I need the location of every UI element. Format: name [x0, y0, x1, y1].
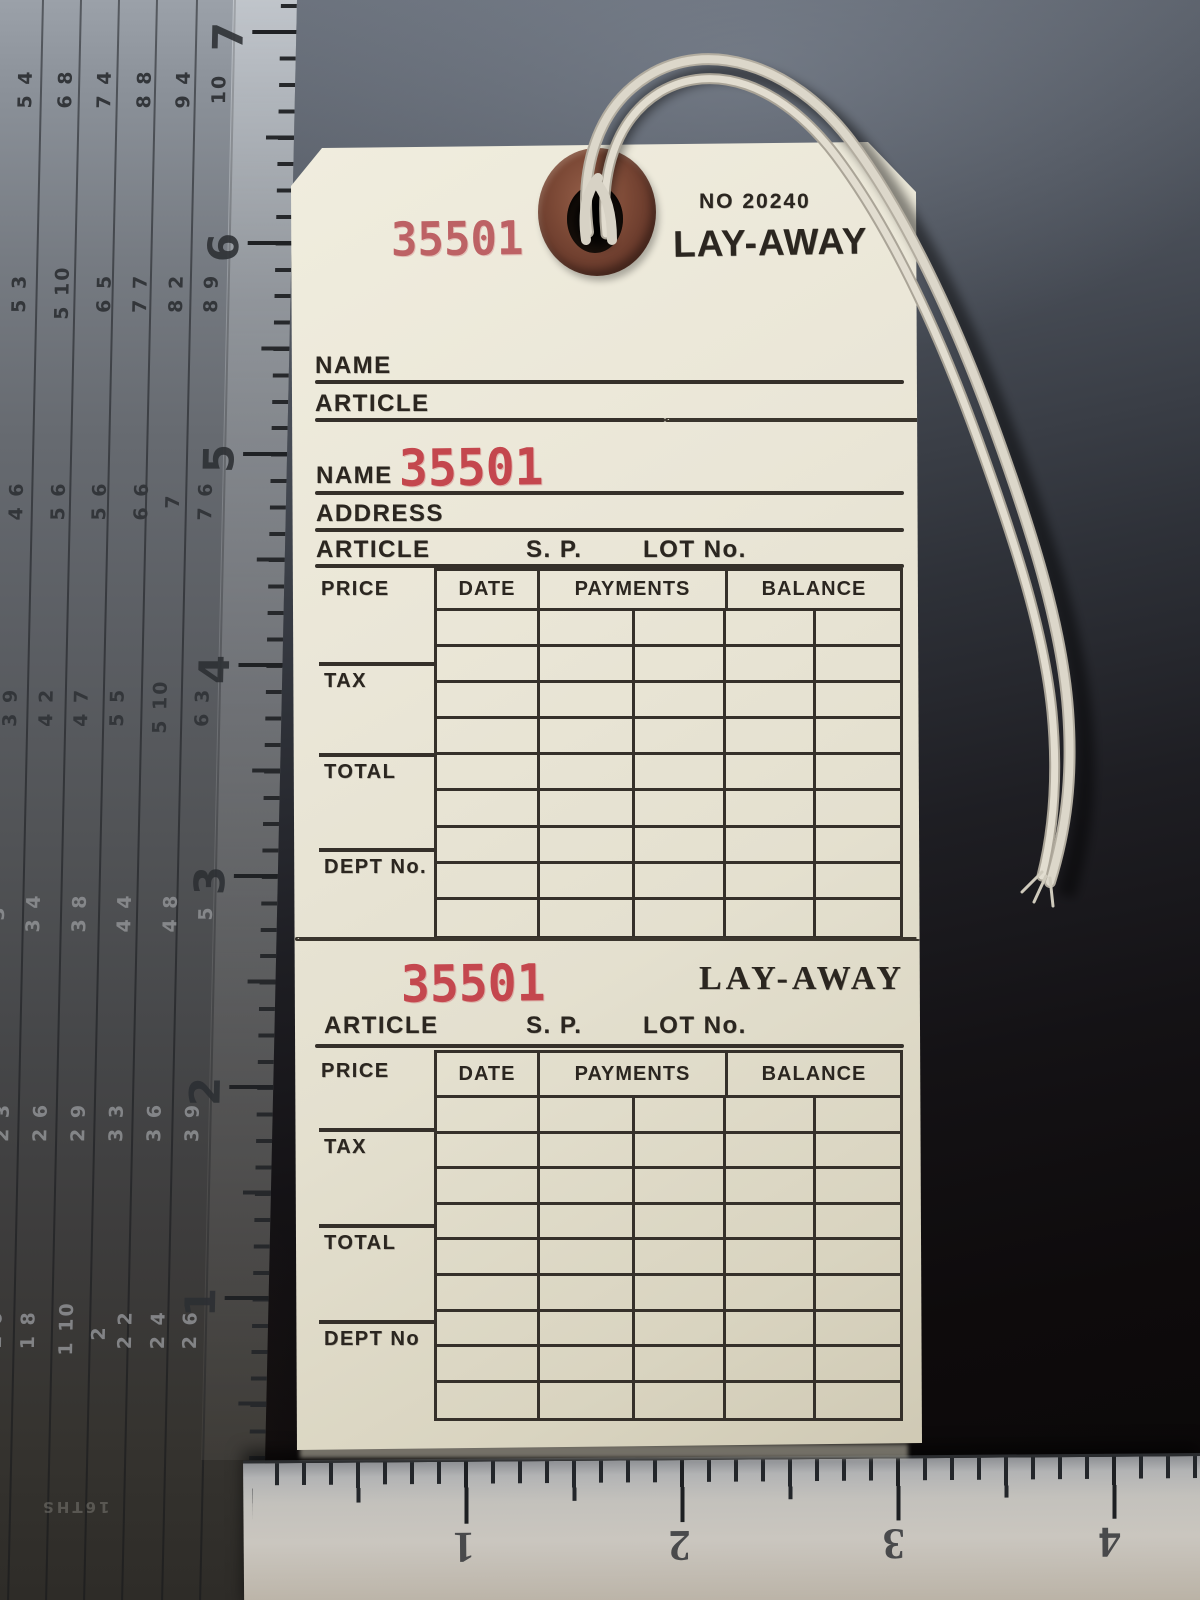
- inch-number: 4: [189, 648, 239, 692]
- rafter-number: 3 4: [23, 893, 46, 932]
- lot-label: LOT No.: [643, 1012, 747, 1040]
- article-writing-line: [315, 418, 665, 422]
- rafter-number: 5 10: [149, 684, 172, 734]
- scale-name-label: 16THS: [40, 1498, 109, 1516]
- table-cell: [635, 1134, 726, 1170]
- rafter-number: 1 8: [16, 1317, 39, 1350]
- table-cell: [726, 1240, 816, 1276]
- payments-table: DATE PAYMENTS BALANCE: [434, 1050, 903, 1421]
- rafter-number-group: 5 35 106 57 78 28 9: [1, 284, 229, 306]
- rafter-number: 4 2: [35, 691, 58, 727]
- tax-label: TAX: [324, 670, 367, 693]
- sp-label: S. P.: [526, 536, 582, 564]
- table-cell: [816, 1347, 900, 1383]
- table-cell: [540, 719, 635, 755]
- table-cell: [437, 900, 540, 936]
- table-cell: [726, 900, 816, 936]
- table-cell: [437, 1312, 540, 1348]
- table-cell: [635, 1169, 726, 1205]
- dept-line: [319, 1320, 435, 1324]
- balance-header: BALANCE: [728, 571, 900, 608]
- table-cell: [635, 1383, 726, 1419]
- rafter-number: 4 6: [5, 481, 28, 520]
- scale-line: [7, 0, 44, 1600]
- table-cell: [540, 1098, 635, 1134]
- table-cell: [635, 1240, 726, 1276]
- table-cell: [540, 864, 635, 900]
- table-cell: [437, 1098, 540, 1134]
- table-cell: [635, 611, 726, 647]
- inch-ticks: [221, 0, 301, 1460]
- table-cell: [635, 864, 726, 900]
- tax-line: [319, 1128, 435, 1132]
- lot-label: LOT No.: [643, 536, 747, 564]
- article-label: ARTICLE: [315, 390, 430, 418]
- sp-label: S. P.: [526, 1012, 582, 1040]
- serial-number-stamp: 35501: [399, 438, 544, 499]
- table-cell: [816, 1205, 900, 1241]
- table-cell: [816, 755, 900, 791]
- scale-line: [161, 0, 198, 1600]
- string-hole: [567, 185, 623, 253]
- table-cell: [726, 1169, 816, 1205]
- table-cell: [816, 719, 900, 755]
- rafter-number: 5 4: [14, 69, 37, 108]
- total-label: TOTAL: [324, 1232, 396, 1255]
- table-cell: [540, 900, 635, 936]
- table-cell: [540, 1169, 635, 1205]
- table-cell: [816, 683, 900, 719]
- rafter-number: 3 3: [105, 1104, 128, 1142]
- article-label: ARTICLE: [324, 1012, 439, 1040]
- rafter-number: 10: [207, 74, 230, 104]
- table-cell: [635, 719, 726, 755]
- table-cell: [635, 900, 726, 936]
- rafter-number: 7: [162, 491, 184, 511]
- table-cell: [540, 1205, 635, 1241]
- rafter-number: 1 10: [55, 1310, 78, 1355]
- table-cell: [540, 1134, 635, 1170]
- rafter-number: 7 6: [194, 481, 217, 520]
- rafter-number: 3 9: [0, 691, 22, 727]
- rafter-number: 3 6: [143, 1104, 166, 1142]
- table-cell: [726, 864, 816, 900]
- dept-label: DEPT No.: [324, 856, 427, 879]
- table-cell: [726, 755, 816, 791]
- table-cell: [437, 864, 540, 900]
- rafter-number: 5 6: [88, 481, 111, 520]
- rafter-number: 7 4: [93, 69, 116, 108]
- table-cell: [816, 647, 900, 683]
- tax-line: [319, 662, 435, 666]
- rafter-number: 5 5: [106, 691, 129, 727]
- rafter-number: 2: [88, 1323, 110, 1343]
- table-cell: [726, 611, 816, 647]
- rafter-number: 2 4: [147, 1317, 170, 1350]
- framing-square-ruler: 5 46 87 48 89 4105 35 106 57 78 28 94 65…: [0, 0, 300, 1600]
- table-cell: [816, 828, 900, 864]
- payments-header: PAYMENTS: [540, 1053, 728, 1095]
- dept-alt-label: DEPT No: [324, 1328, 420, 1351]
- table-header-row: DATE PAYMENTS BALANCE: [437, 1053, 900, 1098]
- table-cell: [635, 1347, 726, 1383]
- inch-number: 3: [864, 1518, 924, 1569]
- rafter-number-group: 4 65 65 66 677 6: [0, 490, 225, 512]
- table-cell: [437, 1347, 540, 1383]
- inch-number: 4: [1079, 1516, 1139, 1567]
- table-cell: [726, 683, 816, 719]
- rafter-number: 8 8: [133, 69, 156, 108]
- table-cell: [816, 1169, 900, 1205]
- table-cell: [437, 791, 540, 827]
- table-cell: [635, 647, 726, 683]
- inch-number: 2: [180, 1070, 230, 1114]
- table-cell: [540, 828, 635, 864]
- table-cell: [437, 1205, 540, 1241]
- table-body: [437, 611, 900, 936]
- table-cell: [726, 1276, 816, 1312]
- perforation-line: [665, 418, 923, 422]
- table-cell: [726, 647, 816, 683]
- rafter-number-group: 3 94 24 75 55 106 3: [0, 698, 221, 720]
- table-cell: [437, 1240, 540, 1276]
- payments-table: DATE PAYMENTS BALANCE: [434, 568, 903, 939]
- rafter-number-group: 2 32 62 93 33 63 9: [0, 1112, 212, 1134]
- article-label: ARTICLE: [316, 536, 431, 564]
- rafter-number: 3 8: [68, 893, 91, 932]
- inch-number: 3: [185, 859, 235, 903]
- inch-number: 2: [650, 1520, 710, 1571]
- table-cell: [816, 1134, 900, 1170]
- total-line: [319, 1224, 435, 1228]
- table-cell: [437, 647, 540, 683]
- inch-number: 7: [203, 15, 253, 59]
- table-cell: [635, 828, 726, 864]
- photo-scene: 5 46 87 48 89 4105 35 106 57 78 28 94 65…: [0, 0, 1200, 1600]
- name-writing-line: [315, 380, 904, 384]
- total-line: [319, 753, 435, 757]
- date-header: DATE: [437, 571, 540, 608]
- inch-number: 5: [194, 437, 244, 481]
- scale-line: [121, 0, 158, 1600]
- rafter-number: 4 8: [159, 893, 182, 932]
- inch-number: 1: [434, 1522, 494, 1573]
- table-cell: [540, 683, 635, 719]
- name-writing-line: [315, 491, 904, 495]
- table-cell: [816, 864, 900, 900]
- dept-line: [319, 848, 435, 852]
- table-cell: [437, 1134, 540, 1170]
- table-cell: [635, 791, 726, 827]
- balance-header: BALANCE: [728, 1053, 900, 1095]
- rafter-number: 7 7: [129, 277, 152, 313]
- table-cell: [816, 1383, 900, 1419]
- name-label: NAME: [315, 352, 392, 380]
- inch-ticks: [252, 1456, 1200, 1525]
- date-header: DATE: [437, 1053, 540, 1095]
- scale-line: [45, 0, 82, 1600]
- string-frayed-end: [1022, 872, 1053, 906]
- table-cell: [437, 1169, 540, 1205]
- table-cell: [635, 1098, 726, 1134]
- layaway-title: LAY-AWAY: [699, 960, 905, 998]
- table-cell: [437, 719, 540, 755]
- graduated-edge: 7 6 5 4 3 2 1: [201, 0, 300, 1460]
- serial-number-stamp: 35501: [391, 212, 524, 268]
- table-cell: [540, 1240, 635, 1276]
- table-cell: [540, 647, 635, 683]
- perforation-line: [295, 937, 920, 941]
- table-cell: [437, 611, 540, 647]
- table-cell: [540, 791, 635, 827]
- inch-number: 1: [176, 1281, 226, 1325]
- square-face: 5 46 87 48 89 4105 35 106 57 78 28 94 65…: [0, 0, 300, 1600]
- rafter-number-group: 33 43 84 44 85: [0, 902, 216, 924]
- table-cell: [540, 1312, 635, 1348]
- table-cell: [437, 755, 540, 791]
- address-label: ADDRESS: [316, 500, 444, 528]
- table-cell: [816, 1276, 900, 1312]
- grommet-washer: [538, 148, 656, 276]
- table-cell: [816, 791, 900, 827]
- tag-number-label: NO 20240: [699, 190, 811, 214]
- table-cell: [635, 1276, 726, 1312]
- table-cell: [635, 1312, 726, 1348]
- table-cell: [726, 1347, 816, 1383]
- table-cell: [726, 828, 816, 864]
- rafter-number: 2 6: [29, 1104, 52, 1142]
- table-cell: [540, 1383, 635, 1419]
- serial-number-stamp: 35501: [401, 954, 546, 1015]
- table-cell: [726, 1312, 816, 1348]
- rafter-number: 3: [0, 903, 9, 923]
- table-cell: [635, 683, 726, 719]
- table-cell: [437, 1383, 540, 1419]
- name-label: NAME: [316, 462, 393, 490]
- rafter-number: 6 6: [130, 481, 153, 520]
- table-cell: [635, 755, 726, 791]
- layaway-tag: 35501 NO 20240 LAY-AWAY NAME ARTICLE 355…: [291, 142, 923, 1452]
- address-writing-line: [315, 528, 904, 532]
- rafter-number-group: 1 61 81 1022 22 42 6: [0, 1322, 207, 1344]
- table-cell: [540, 1347, 635, 1383]
- table-cell: [816, 1240, 900, 1276]
- table-cell: [726, 719, 816, 755]
- rafter-number: 9 4: [172, 69, 195, 108]
- rafter-number: 6 5: [93, 277, 116, 313]
- table-cell: [816, 1098, 900, 1134]
- table-cell: [437, 683, 540, 719]
- table-cell: [437, 828, 540, 864]
- table-cell: [540, 611, 635, 647]
- table-cell: [726, 1205, 816, 1241]
- table-cell: [816, 611, 900, 647]
- table-cell: [540, 1276, 635, 1312]
- scale-line: [83, 0, 120, 1600]
- rafter-number: 2 3: [0, 1104, 14, 1142]
- article-writing-line: [315, 1044, 904, 1048]
- table-cell: [726, 1098, 816, 1134]
- rafter-number: 2 9: [67, 1104, 90, 1142]
- rafter-number: 5 6: [47, 481, 70, 520]
- rafter-number: 4 4: [113, 893, 136, 932]
- table-cell: [540, 755, 635, 791]
- rafter-number: 2 2: [114, 1317, 137, 1350]
- payments-header: PAYMENTS: [540, 571, 728, 608]
- table-cell: [816, 900, 900, 936]
- price-label: PRICE: [321, 578, 390, 601]
- rafter-number: 8 9: [200, 277, 223, 313]
- layaway-title: LAY-AWAY: [673, 220, 868, 265]
- rafter-number: 6 3: [191, 691, 214, 727]
- inch-number: 6: [199, 226, 249, 270]
- table-header-row: DATE PAYMENTS BALANCE: [437, 571, 900, 611]
- table-cell: [726, 1134, 816, 1170]
- rafter-number: 8 2: [165, 277, 188, 313]
- tax-label: TAX: [324, 1136, 367, 1159]
- rafter-number-group: 5 46 87 48 89 410: [6, 78, 234, 100]
- price-label: PRICE: [321, 1060, 390, 1083]
- table-cell: [635, 1205, 726, 1241]
- table-cell: [437, 1276, 540, 1312]
- bottom-ruler: 1 2 3 4: [243, 1453, 1200, 1600]
- rafter-number: 6 8: [54, 69, 77, 108]
- total-label: TOTAL: [324, 761, 396, 784]
- table-cell: [726, 1383, 816, 1419]
- rafter-number: 5 10: [50, 270, 73, 320]
- rafter-number: 5 3: [8, 277, 31, 313]
- table-cell: [726, 791, 816, 827]
- table-body: [437, 1098, 900, 1418]
- rafter-number: 1 6: [0, 1317, 7, 1350]
- rafter-number: 4 7: [70, 691, 93, 727]
- table-cell: [816, 1312, 900, 1348]
